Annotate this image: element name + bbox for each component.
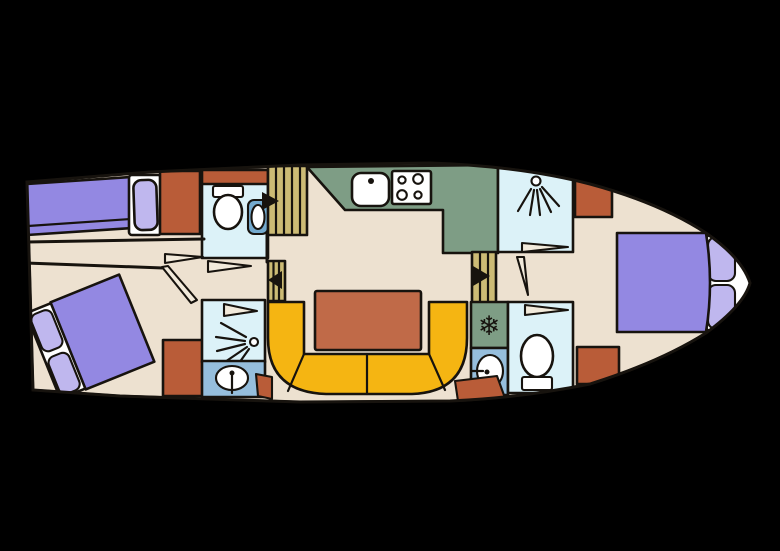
pillow <box>133 180 158 231</box>
side-locker <box>256 374 272 399</box>
toilet-icon <box>521 335 553 377</box>
canvas: ❄ <box>0 0 780 551</box>
aft-double-bed <box>617 231 750 335</box>
fridge: ❄ <box>471 302 508 348</box>
mattress <box>617 233 710 332</box>
galley-sink-icon <box>352 173 389 206</box>
wardrobe-fore-top <box>160 171 200 234</box>
stairs-aft <box>472 252 496 303</box>
wardrobe-aft-bottom <box>577 347 619 384</box>
toilet-room-fore <box>202 170 268 258</box>
toilet-room-aft <box>508 302 573 393</box>
stairs-fore <box>268 261 285 301</box>
wardrobe-fore-bottom <box>163 340 203 396</box>
snowflake-icon: ❄ <box>478 311 501 342</box>
toilet-icon <box>214 195 242 229</box>
stairs-main <box>262 166 307 235</box>
stove-icon <box>392 171 431 204</box>
faucet-icon <box>368 178 374 184</box>
fore-single-bed <box>27 175 161 235</box>
counter-strip <box>202 170 268 184</box>
saloon-table <box>315 291 421 350</box>
boat-floorplan: ❄ <box>0 0 780 551</box>
toilet-tank <box>522 377 552 390</box>
